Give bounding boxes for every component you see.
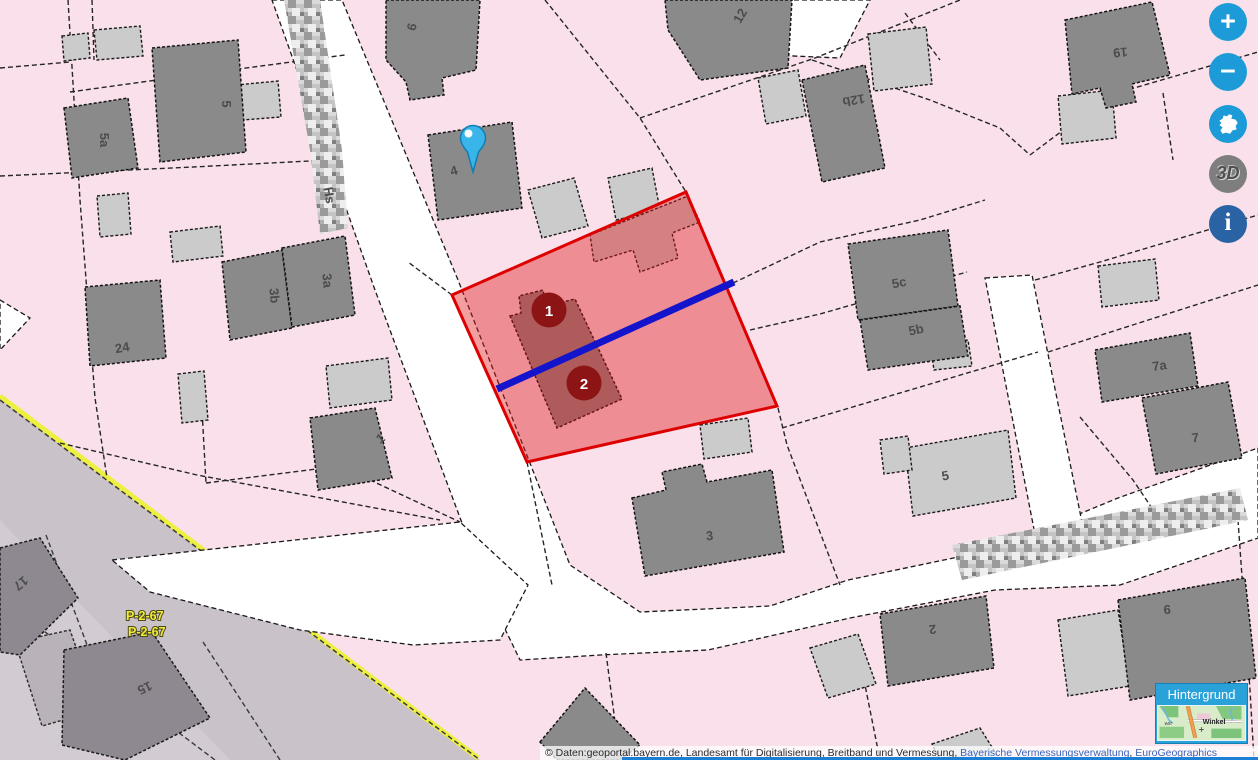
map-viewport: 5a 5 24 3b 3a 4 6 1 12 12b 19 5c 5b 7a 7…: [0, 0, 1258, 760]
house-number-label: 5c: [890, 274, 907, 292]
background-selector-title: Hintergrund: [1156, 684, 1247, 705]
house-number-label: 3b: [266, 287, 282, 303]
house-number-label: 19: [1113, 44, 1129, 60]
zoom-in-button[interactable]: +: [1209, 3, 1247, 41]
thumbnail-place-label: Winkel: [1203, 719, 1226, 726]
bavaria-outline-icon: [1215, 111, 1241, 137]
house-number-label: 5b: [907, 321, 925, 339]
svg-text:P-2-67: P-2-67: [126, 609, 164, 623]
svg-text:P-2-67: P-2-67: [128, 625, 166, 639]
thumbnail-place-small-label: Wkt: [1164, 721, 1172, 726]
marker-1[interactable]: 1: [532, 293, 567, 328]
house-number-label: 5: [219, 100, 234, 107]
background-thumbnail[interactable]: Winkel Wkt: [1157, 705, 1246, 741]
zoom-out-button[interactable]: −: [1209, 53, 1247, 91]
background-selector[interactable]: Hintergrund Winkel Wkt: [1155, 683, 1248, 744]
street-label-fragment: Hs: [321, 186, 339, 205]
marker-2-label: 2: [580, 376, 588, 393]
full-extent-button[interactable]: [1209, 105, 1247, 143]
map-canvas[interactable]: 5a 5 24 3b 3a 4 6 1 12 12b 19 5c 5b 7a 7…: [0, 0, 1258, 760]
marker-1-label: 1: [545, 303, 553, 320]
house-number-label: 9: [1163, 602, 1171, 617]
view-3d-button[interactable]: 3D: [1209, 155, 1247, 193]
background-thumbnail-map: Winkel Wkt: [1158, 706, 1243, 738]
house-number-label: 7a: [1151, 357, 1168, 374]
marker-2[interactable]: 2: [567, 366, 602, 401]
house-number-label: 3a: [319, 273, 335, 289]
info-button[interactable]: i: [1209, 205, 1247, 243]
house-number-label: 3: [705, 528, 714, 544]
house-number-label: 5a: [97, 133, 112, 148]
